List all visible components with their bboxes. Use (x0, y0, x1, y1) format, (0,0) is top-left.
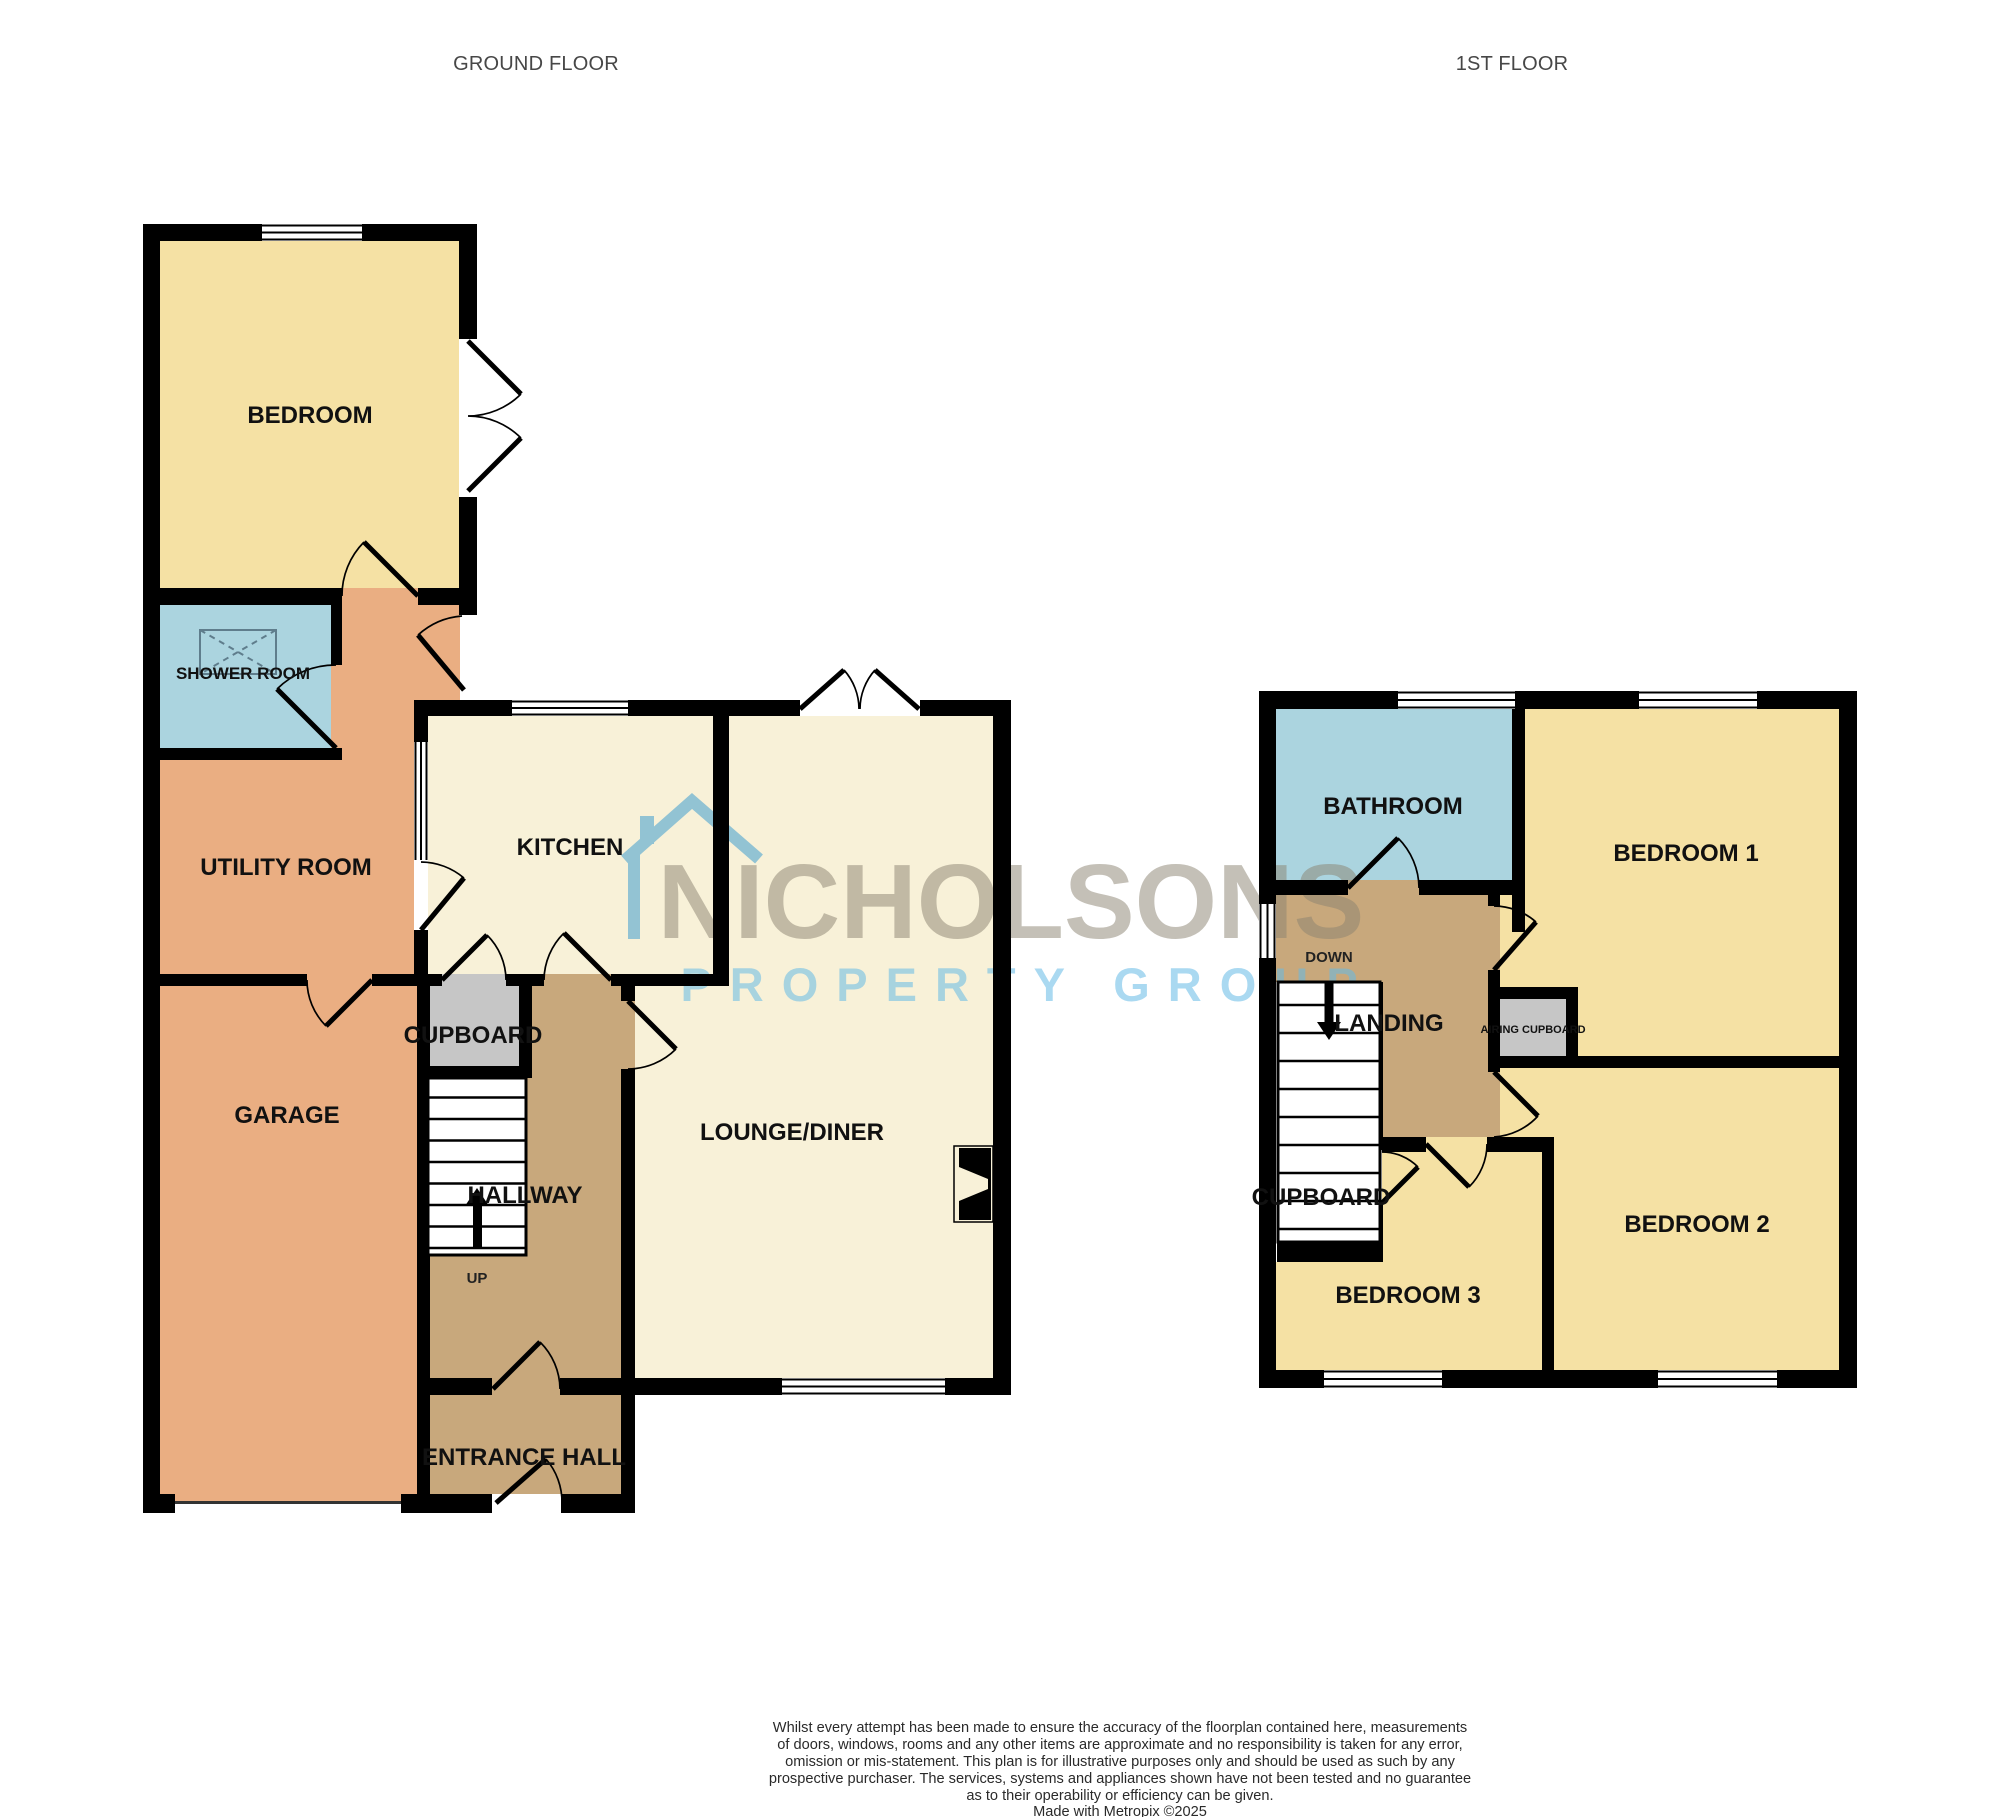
svg-text:BEDROOM 2: BEDROOM 2 (1624, 1211, 1769, 1238)
svg-text:HALLWAY: HALLWAY (467, 1182, 582, 1209)
svg-text:ENTRANCE HALL: ENTRANCE HALL (422, 1444, 626, 1471)
svg-text:CUPBOARD: CUPBOARD (404, 1022, 543, 1049)
svg-text:BEDROOM 3: BEDROOM 3 (1335, 1282, 1480, 1309)
svg-text:Whilst every attempt has been: Whilst every attempt has been made to en… (773, 1720, 1467, 1736)
svg-text:AIRING CUPBOARD: AIRING CUPBOARD (1480, 1024, 1585, 1036)
svg-text:1ST FLOOR: 1ST FLOOR (1456, 53, 1569, 75)
svg-text:GARAGE: GARAGE (234, 1102, 339, 1129)
svg-text:CUPBOARD: CUPBOARD (1252, 1184, 1391, 1211)
svg-text:LOUNGE/DINER: LOUNGE/DINER (700, 1119, 884, 1146)
svg-text:KITCHEN: KITCHEN (517, 834, 624, 861)
svg-text:LANDING: LANDING (1334, 1010, 1443, 1037)
svg-text:as to their operability or eff: as to their operability or efficiency ca… (966, 1788, 1273, 1804)
svg-text:SHOWER ROOM: SHOWER ROOM (176, 664, 310, 683)
svg-text:BEDROOM: BEDROOM (247, 402, 372, 429)
svg-text:UP: UP (467, 1270, 488, 1287)
svg-text:UTILITY ROOM: UTILITY ROOM (200, 854, 372, 881)
svg-text:BATHROOM: BATHROOM (1323, 793, 1463, 820)
svg-text:of doors, windows, rooms and a: of doors, windows, rooms and any other i… (777, 1737, 1462, 1753)
svg-text:Made with Metropix ©2025: Made with Metropix ©2025 (1033, 1804, 1207, 1817)
svg-text:prospective purchaser. The ser: prospective purchaser. The services, sys… (769, 1771, 1471, 1787)
svg-text:DOWN: DOWN (1305, 949, 1353, 966)
svg-text:BEDROOM 1: BEDROOM 1 (1613, 840, 1758, 867)
svg-text:GROUND FLOOR: GROUND FLOOR (453, 53, 619, 75)
svg-text:omission or mis-statement. Thi: omission or mis-statement. This plan is … (785, 1754, 1455, 1770)
